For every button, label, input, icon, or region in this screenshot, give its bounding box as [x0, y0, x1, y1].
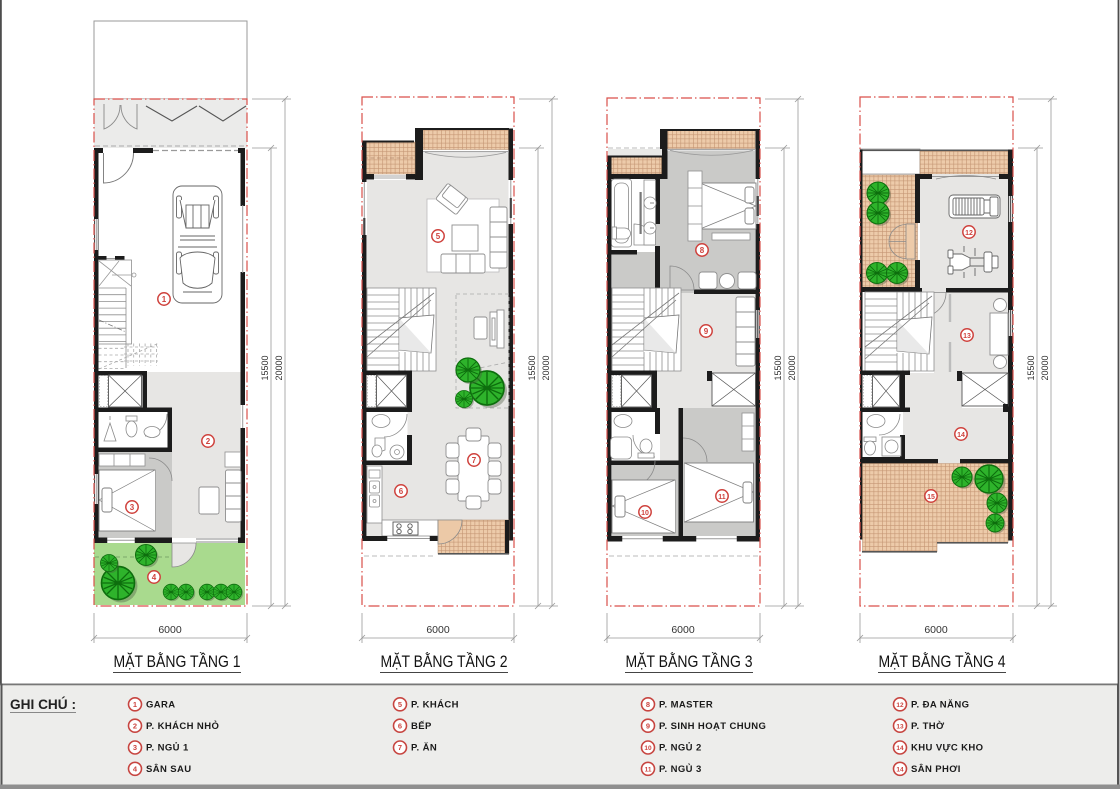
svg-text:14: 14 [957, 432, 965, 439]
svg-text:BẾP: BẾP [411, 721, 432, 732]
svg-text:12: 12 [896, 702, 904, 709]
svg-text:P. ĂN: P. ĂN [411, 743, 437, 754]
svg-text:6000: 6000 [158, 624, 182, 636]
svg-text:10: 10 [641, 510, 649, 517]
svg-text:6: 6 [399, 487, 404, 496]
svg-text:MẶT BẰNG TẦNG 1: MẶT BẰNG TẦNG 1 [114, 652, 241, 671]
svg-text:3: 3 [133, 743, 137, 752]
svg-text:GHI CHÚ :: GHI CHÚ : [10, 695, 76, 712]
svg-text:20000: 20000 [1040, 355, 1050, 380]
svg-text:P. NGỦ 2: P. NGỦ 2 [659, 742, 702, 754]
svg-text:P. MASTER: P. MASTER [659, 700, 713, 711]
svg-text:MẶT BẰNG TẦNG 4: MẶT BẰNG TẦNG 4 [879, 652, 1006, 671]
svg-text:2: 2 [133, 721, 137, 730]
svg-text:14: 14 [896, 745, 904, 752]
svg-text:P. ĐA NĂNG: P. ĐA NĂNG [911, 700, 969, 711]
svg-text:P. KHÁCH: P. KHÁCH [411, 700, 459, 711]
svg-text:P. NGỦ 3: P. NGỦ 3 [659, 763, 702, 775]
svg-text:13: 13 [896, 723, 904, 730]
svg-text:6000: 6000 [924, 624, 948, 636]
svg-text:12: 12 [965, 230, 973, 237]
svg-text:14: 14 [896, 767, 904, 774]
svg-text:7: 7 [472, 456, 477, 465]
svg-text:MẶT BẰNG TẦNG 3: MẶT BẰNG TẦNG 3 [626, 652, 753, 671]
svg-text:1: 1 [162, 295, 167, 304]
svg-text:P. NGỦ 1: P. NGỦ 1 [146, 742, 189, 754]
svg-text:10: 10 [644, 745, 652, 752]
svg-text:6000: 6000 [671, 624, 695, 636]
svg-text:8: 8 [700, 246, 705, 255]
svg-text:9: 9 [646, 721, 650, 730]
svg-text:P. SINH HOẠT CHUNG: P. SINH HOẠT CHUNG [659, 721, 766, 732]
svg-text:11: 11 [718, 494, 726, 501]
svg-text:15500: 15500 [1026, 355, 1036, 380]
svg-text:13: 13 [963, 333, 971, 340]
svg-text:20000: 20000 [787, 355, 797, 380]
svg-text:6000: 6000 [426, 624, 450, 636]
svg-text:KHU VỰC KHO: KHU VỰC KHO [911, 743, 983, 754]
svg-text:SÂN SAU: SÂN SAU [146, 763, 192, 775]
svg-text:SÂN PHƠI: SÂN PHƠI [911, 763, 961, 775]
svg-text:15: 15 [927, 494, 935, 501]
svg-text:15500: 15500 [260, 355, 270, 380]
svg-text:P. KHÁCH NHỎ: P. KHÁCH NHỎ [146, 720, 219, 732]
svg-text:1: 1 [133, 700, 137, 709]
svg-text:20000: 20000 [541, 355, 551, 380]
svg-text:9: 9 [704, 327, 709, 336]
svg-text:15500: 15500 [773, 355, 783, 380]
svg-text:6: 6 [398, 721, 402, 730]
svg-text:8: 8 [646, 700, 650, 709]
svg-text:5: 5 [436, 232, 441, 241]
svg-text:11: 11 [645, 767, 652, 774]
svg-text:4: 4 [152, 573, 157, 582]
svg-text:2: 2 [206, 437, 211, 446]
svg-text:5: 5 [398, 700, 402, 709]
svg-text:GARA: GARA [146, 700, 176, 711]
svg-text:20000: 20000 [274, 355, 284, 380]
svg-text:MẶT BẰNG TẦNG 2: MẶT BẰNG TẦNG 2 [381, 652, 508, 671]
svg-text:P. THỜ: P. THỜ [911, 720, 945, 732]
svg-text:3: 3 [130, 503, 135, 512]
svg-text:7: 7 [398, 743, 402, 752]
svg-text:15500: 15500 [527, 355, 537, 380]
